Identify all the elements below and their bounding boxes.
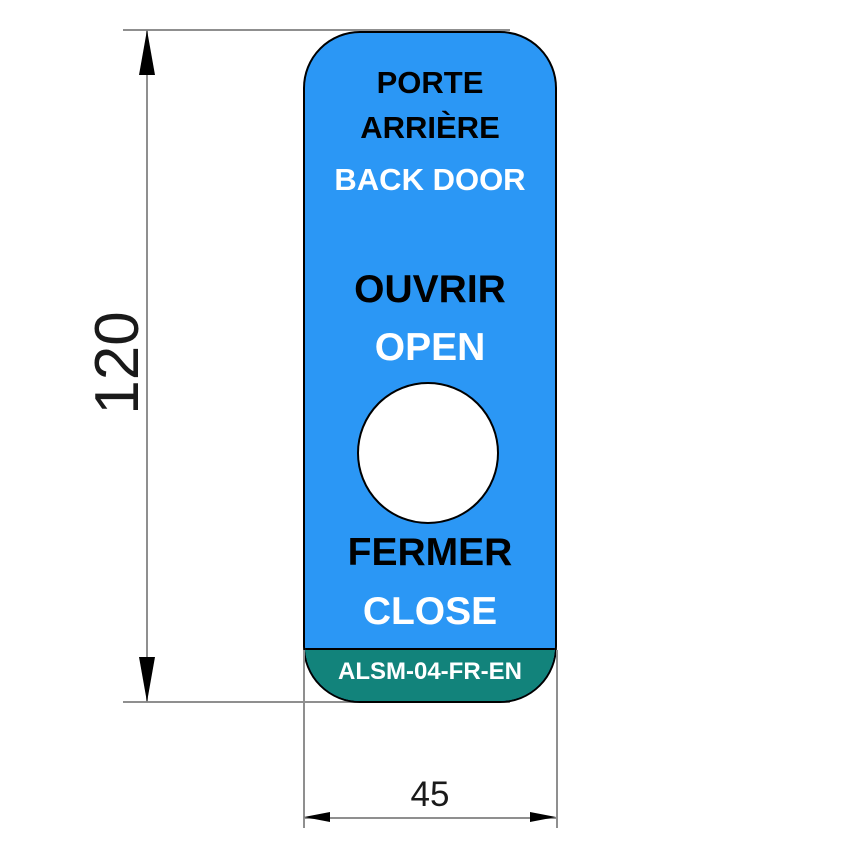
title-english: BACK DOOR (303, 164, 557, 195)
width-dimension-line (304, 817, 556, 819)
title-french-line2: ARRIÈRE (303, 112, 557, 143)
part-code-text: ALSM-04-FR-EN (303, 660, 557, 684)
width-dimension-value: 45 (303, 777, 557, 813)
width-arrowhead-right-icon (530, 812, 556, 822)
width-arrowhead-left-icon (304, 812, 330, 822)
height-arrowhead-down-icon (139, 657, 155, 702)
close-label-english: CLOSE (303, 592, 557, 631)
close-label-french: FERMER (303, 533, 557, 572)
open-label-french: OUVRIR (303, 270, 557, 309)
height-arrowhead-up-icon (139, 30, 155, 75)
height-dimension-value: 120 (86, 298, 150, 428)
hanger-hole (357, 382, 499, 524)
technical-drawing-canvas: 120 PORTE ARRIÈRE BACK DOOR OUVRIR OPEN … (0, 0, 850, 850)
open-label-english: OPEN (303, 328, 557, 367)
title-french-line1: PORTE (303, 67, 557, 98)
